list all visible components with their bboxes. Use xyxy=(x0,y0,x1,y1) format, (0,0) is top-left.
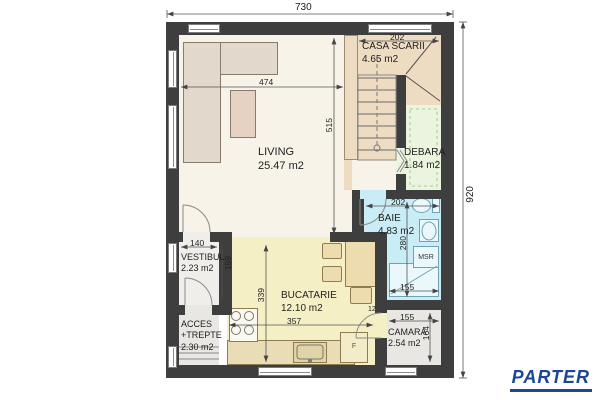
washing-machine: MSR xyxy=(413,246,439,268)
room-label-debara: DEBARA 1.84 m2 xyxy=(404,147,445,172)
window xyxy=(168,105,177,169)
fridge-label: F xyxy=(341,343,367,350)
chair xyxy=(322,243,342,259)
room-area: 25.47 m2 xyxy=(258,160,304,174)
kitchen-sink xyxy=(293,342,327,363)
window xyxy=(188,24,220,33)
wall-baie-camara xyxy=(375,300,441,310)
window xyxy=(258,367,312,376)
fridge: F xyxy=(340,332,368,363)
dim-camara-width: 155 xyxy=(400,312,414,322)
dim-door-width: 12 xyxy=(368,306,376,313)
window xyxy=(168,50,177,88)
kitchen-counter xyxy=(227,340,355,365)
dim-vestibul-height: 159 xyxy=(223,256,233,270)
room-name: BAIE xyxy=(378,213,414,226)
window xyxy=(385,367,417,376)
toilet xyxy=(412,198,431,213)
window xyxy=(168,346,177,368)
stove xyxy=(229,308,258,342)
dim-overall-width: 730 xyxy=(295,2,312,13)
coffee-table xyxy=(230,90,256,138)
washing-machine-label: MSR xyxy=(414,254,438,261)
floor-plan: F MSR xyxy=(0,0,600,400)
room-label-vestibul: VESTIBUL 2.23 m2 xyxy=(181,252,225,275)
room-name: BUCATARIE xyxy=(281,290,337,303)
room-name: CASA SCARII xyxy=(362,41,425,54)
room-label-acces: ACCES +TREPTE 2.30 m2 xyxy=(181,319,222,353)
chair xyxy=(350,287,372,304)
dim-overall-height: 920 xyxy=(465,186,476,203)
dim-baie-bottom: 155 xyxy=(400,282,414,292)
door-opening-acces xyxy=(185,305,212,315)
washbasin xyxy=(419,219,439,242)
dim-vestibul-width: 140 xyxy=(190,238,204,248)
dim-camara-height: 164 xyxy=(421,326,431,340)
room-label-bucatarie: BUCATARIE 12.10 m2 xyxy=(281,290,337,315)
room-name: ACCES xyxy=(181,319,222,330)
hall-floor xyxy=(352,160,396,190)
dim-baie-width: 202 xyxy=(391,197,405,207)
stair-railing xyxy=(344,35,358,160)
dim-bucatarie-height: 339 xyxy=(256,288,266,302)
room-label-baie: BAIE 4.83 m2 xyxy=(378,213,414,238)
dim-casa-scarii-width: 202 xyxy=(390,32,404,42)
room-area: 2.30 m2 xyxy=(181,342,222,353)
door-opening-baie xyxy=(360,190,386,199)
dim-living-height: 515 xyxy=(324,118,334,132)
dim-baie-height: 280 xyxy=(398,236,408,250)
toilet-tank xyxy=(432,198,440,213)
room-label-casa-scarii: CASA SCARII 4.65 m2 xyxy=(362,41,425,66)
window xyxy=(168,243,177,273)
wall-right xyxy=(441,22,454,378)
door-opening-camara xyxy=(375,313,387,338)
room-area: 4.65 m2 xyxy=(362,54,425,67)
dining-table xyxy=(345,240,376,287)
sofa-chaise xyxy=(183,42,221,163)
room-label-living: LIVING 25.47 m2 xyxy=(258,146,304,174)
floor-title: PARTER xyxy=(510,367,592,392)
room-area: 12.10 m2 xyxy=(281,303,337,316)
room-area: 2.23 m2 xyxy=(181,263,225,274)
chair xyxy=(322,266,342,282)
room-name: LIVING xyxy=(258,146,304,160)
dim-living-width: 474 xyxy=(259,77,273,87)
room-area: 1.84 m2 xyxy=(404,160,445,173)
dim-bucatarie-width: 357 xyxy=(287,316,301,326)
room-name: DEBARA xyxy=(404,147,445,160)
room-name: VESTIBUL xyxy=(181,252,225,263)
room-name: +TREPTE xyxy=(181,330,222,341)
room-area: 4.83 m2 xyxy=(378,226,414,239)
